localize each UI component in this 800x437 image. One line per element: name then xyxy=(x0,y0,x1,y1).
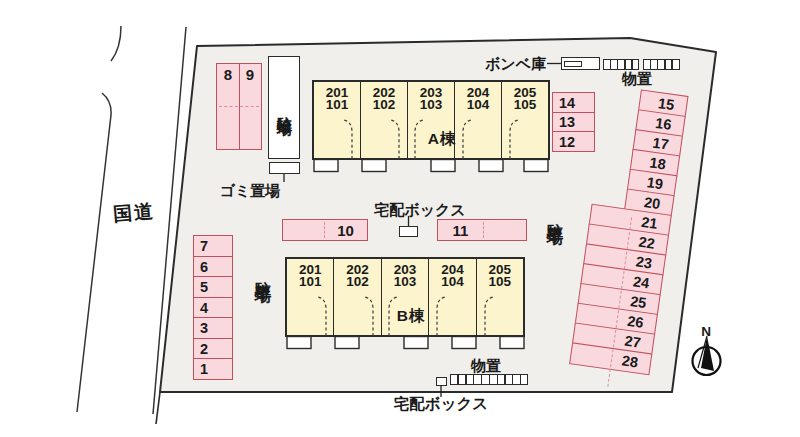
parking-number: 15 xyxy=(657,95,675,113)
parking-number: 5 xyxy=(200,279,208,295)
storage-strip xyxy=(603,59,639,70)
parking-space-1: 1 xyxy=(193,358,233,380)
road-label: 国道 xyxy=(109,202,158,223)
parking-number: 19 xyxy=(646,174,664,192)
unit-number-lower: 103 xyxy=(382,276,428,288)
parking-label-right: 駐車場 xyxy=(544,210,565,219)
parking-number: 22 xyxy=(638,233,656,251)
unit-b-204: 204 104 xyxy=(428,259,475,335)
parking-space-8: 8 xyxy=(217,64,240,149)
storage-top-label: 物置 xyxy=(614,70,660,87)
parking-space-10: 10 xyxy=(282,219,368,241)
storage-strip xyxy=(450,374,528,385)
unit-a-202: 202 102 xyxy=(360,82,407,158)
parking-space-5: 5 xyxy=(193,276,233,298)
parking-space-9: 9 xyxy=(239,64,261,149)
site-plan: 国道 8 9 駐輪場 ゴミ置場 201 101 202 102 203 103 … xyxy=(0,0,800,437)
parking-number: 16 xyxy=(654,115,672,133)
parking-number: 12 xyxy=(559,134,575,150)
parking-number: 14 xyxy=(559,95,575,111)
parking-number: 6 xyxy=(200,259,208,275)
parking-space-2: 2 xyxy=(193,338,233,360)
parking-number: 20 xyxy=(643,194,661,212)
parking-number: 23 xyxy=(635,253,653,271)
parking-number: 3 xyxy=(200,320,208,336)
parking-label-left: 駐車場 xyxy=(252,268,273,277)
parking-space-11: 11 xyxy=(437,219,527,241)
unit-b-205: 205 105 xyxy=(476,259,523,335)
parking-number: 11 xyxy=(438,220,483,240)
garbage-label: ゴミ置場 xyxy=(197,182,303,199)
parking-number: 4 xyxy=(200,300,208,316)
unit-number-lower: 102 xyxy=(334,276,380,288)
parking-number: 21 xyxy=(640,214,658,232)
unit-b-201: 201 101 xyxy=(287,259,333,335)
building-a-label: A棟 xyxy=(428,129,457,150)
unit-number-lower: 103 xyxy=(408,99,454,111)
parking-number: 24 xyxy=(632,273,650,291)
unit-b-202: 202 102 xyxy=(333,259,380,335)
road-left-edge xyxy=(77,93,111,412)
bike-parking-label: 駐輪場 xyxy=(275,103,294,112)
parking-number: 25 xyxy=(629,293,647,311)
parking-number: 1 xyxy=(200,361,208,377)
parking-column-1-7: 7 6 5 4 3 2 1 xyxy=(193,235,233,380)
building-a: 201 101 202 102 203 103 204 104 205 105 … xyxy=(312,80,550,160)
parking-number: 17 xyxy=(652,134,670,152)
gas-cylinder-inner xyxy=(564,61,582,67)
delivery-box-bottom-label: 宅配ボックス xyxy=(385,395,497,412)
parking-space-12: 12 xyxy=(552,131,595,152)
bike-parking-box: 駐輪場 xyxy=(268,56,300,159)
storage-bottom-label: 物置 xyxy=(464,357,508,374)
parking-space-4: 4 xyxy=(193,297,233,319)
parking-dashed-divider xyxy=(483,222,484,238)
compass-north-label: N xyxy=(697,323,715,340)
parking-pair-8-9: 8 9 xyxy=(216,63,262,150)
building-b: 201 101 202 102 203 103 204 104 205 105 … xyxy=(285,257,525,337)
unit-number-lower: 105 xyxy=(477,276,523,288)
parking-number: 27 xyxy=(624,332,642,350)
gas-cylinder-box xyxy=(561,57,600,70)
parking-number: 13 xyxy=(559,114,575,130)
parking-number: 26 xyxy=(626,313,644,331)
parking-number: 28 xyxy=(621,352,639,370)
parking-number: 7 xyxy=(200,238,208,254)
parking-space-6: 6 xyxy=(193,256,233,278)
storage-strip xyxy=(643,59,680,70)
unit-number-lower: 105 xyxy=(502,99,548,111)
parking-number: 8 xyxy=(224,66,232,149)
parking-number: 9 xyxy=(246,66,254,149)
gas-cylinder-label: ボンベ庫 xyxy=(478,55,546,72)
delivery-box-mid xyxy=(399,226,418,237)
delivery-box-mid-label: 宅配ボックス xyxy=(368,201,472,218)
unit-number-lower: 104 xyxy=(429,276,475,288)
unit-number-lower: 101 xyxy=(287,276,333,288)
parking-space-14: 14 xyxy=(552,92,595,113)
parking-space-7: 7 xyxy=(193,235,233,257)
parking-number: 18 xyxy=(649,154,667,172)
parking-number: 10 xyxy=(324,220,367,240)
garbage-box xyxy=(269,162,300,174)
boundary-extension-line xyxy=(156,392,160,424)
unit-number-lower: 102 xyxy=(361,99,407,111)
unit-number-lower: 104 xyxy=(455,99,501,111)
unit-a-205: 205 105 xyxy=(501,82,548,158)
parking-number: 2 xyxy=(200,341,208,357)
parking-space-3: 3 xyxy=(193,317,233,339)
road-left-edge-curve xyxy=(111,26,121,61)
parking-column-12-14: 14 13 12 xyxy=(552,92,595,152)
unit-a-201: 201 101 xyxy=(314,82,360,158)
parking-space-13: 13 xyxy=(552,112,595,133)
delivery-box-bottom xyxy=(436,377,447,386)
building-b-label: B棟 xyxy=(397,306,426,327)
unit-a-204: 204 104 xyxy=(454,82,501,158)
unit-number-lower: 101 xyxy=(314,99,360,111)
